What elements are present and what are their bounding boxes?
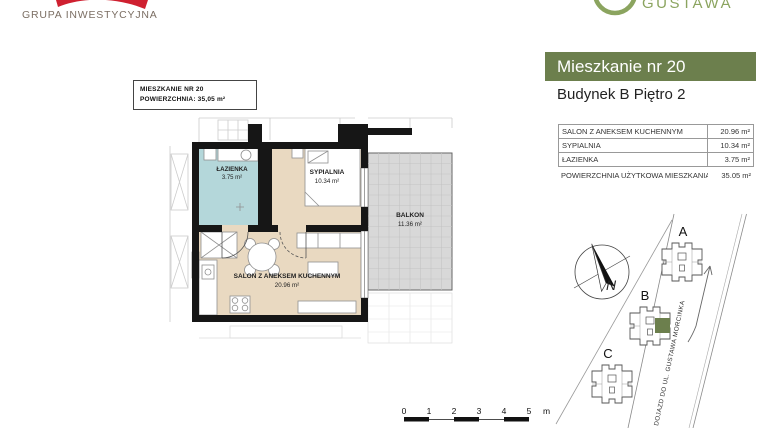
table-summary-row: POWIERZCHNIA UŻYTKOWA MIESZKANIA 35.05 m… — [558, 169, 754, 182]
developer-logo: GRUPA INWESTYCYJNA — [18, 0, 168, 28]
building-c-label: C — [603, 346, 612, 361]
living-room-area: 20.96 m² — [275, 282, 299, 289]
total-area-label: POWIERZCHNIA UŻYTKOWA MIESZKANIA — [558, 169, 708, 182]
room-label: SYPIALNIA — [559, 139, 707, 152]
scale-tick: 5 — [527, 406, 532, 416]
building-a-label: A — [679, 224, 688, 239]
building-floor-subtitle: Budynek B Piętro 2 — [545, 86, 756, 103]
scale-tick: 3 — [477, 406, 482, 416]
living-room-label: SALON Z ANEKSEM KUCHENNYM — [234, 273, 341, 280]
dining-table — [248, 243, 276, 271]
room-areas-table-box: SALON Z ANEKSEM KUCHENNYM 20.96 m² SYPIA… — [558, 124, 754, 167]
estate-logo-text: GUSTAWA — [642, 0, 733, 12]
scale-tick-labels: 0 1 2 3 4 5 m — [402, 406, 550, 416]
bath-counter — [218, 148, 258, 161]
scale-unit: m — [543, 406, 550, 416]
bathroom-area: 3.75 m² — [222, 175, 242, 181]
selected-unit-highlight — [655, 318, 670, 333]
room-area-value: 10.34 m² — [707, 139, 753, 152]
balcony-label: BALKON — [396, 212, 424, 219]
scale-tick: 0 — [402, 406, 407, 416]
scale-segments — [404, 417, 529, 422]
plan-caption-box: MIESZKANIE NR 20 POWIERZCHNIA: 35,05 m² — [133, 80, 257, 110]
scale-tick: 4 — [502, 406, 507, 416]
toilet — [204, 148, 216, 160]
balcony — [368, 153, 452, 343]
scale-tick: 1 — [427, 406, 432, 416]
room-area-value: 20.96 m² — [707, 125, 753, 138]
total-area-value: 35.05 m² — [708, 169, 754, 182]
bathroom-label: ŁAZIENKA — [216, 166, 248, 173]
building-c-footprint — [592, 365, 632, 403]
developer-logo-text: GRUPA INWESTYCYJNA — [22, 9, 158, 21]
tv-bench — [298, 301, 356, 313]
estate-logo: GUSTAWA — [592, 0, 752, 20]
sink — [241, 150, 251, 160]
apartment-card-page: GRUPA INWESTYCYJNA GUSTAWA Mieszkanie nr… — [0, 0, 760, 428]
bedroom-area: 10.34 m² — [315, 178, 339, 185]
room-area-value: 3.75 m² — [707, 153, 753, 166]
room-label: ŁAZIENKA — [559, 153, 707, 166]
building-a-footprint — [662, 243, 702, 281]
room-areas-table: SALON Z ANEKSEM KUCHENNYM 20.96 m² SYPIA… — [558, 124, 754, 182]
nightstand — [292, 148, 303, 158]
sofa — [297, 233, 361, 248]
room-label: SALON Z ANEKSEM KUCHENNYM — [559, 125, 707, 138]
compass-north-label: N — [606, 277, 617, 293]
page-title: Mieszkanie nr 20 — [545, 52, 756, 81]
bedroom-label: SYPIALNIA — [310, 169, 345, 176]
scale-bar: 0 1 2 3 4 5 m — [395, 404, 555, 428]
compass-icon: N — [568, 236, 640, 308]
building-b-label: B — [641, 288, 650, 303]
scale-tick: 2 — [452, 406, 457, 416]
table-row: SYPIALNIA 10.34 m² — [559, 138, 753, 152]
table-row: ŁAZIENKA 3.75 m² — [559, 152, 753, 166]
plan-caption-line1: MIESZKANIE NR 20 — [140, 85, 250, 95]
table-row: SALON Z ANEKSEM KUCHENNYM 20.96 m² — [559, 125, 753, 138]
balcony-area: 11.36 m² — [398, 221, 422, 228]
plan-caption-line2: POWIERZCHNIA: 35,05 m² — [140, 95, 250, 105]
floor-plan: ŁAZIENKA 3.75 m² SYPIALNIA 10.34 m² BALK… — [160, 110, 470, 365]
